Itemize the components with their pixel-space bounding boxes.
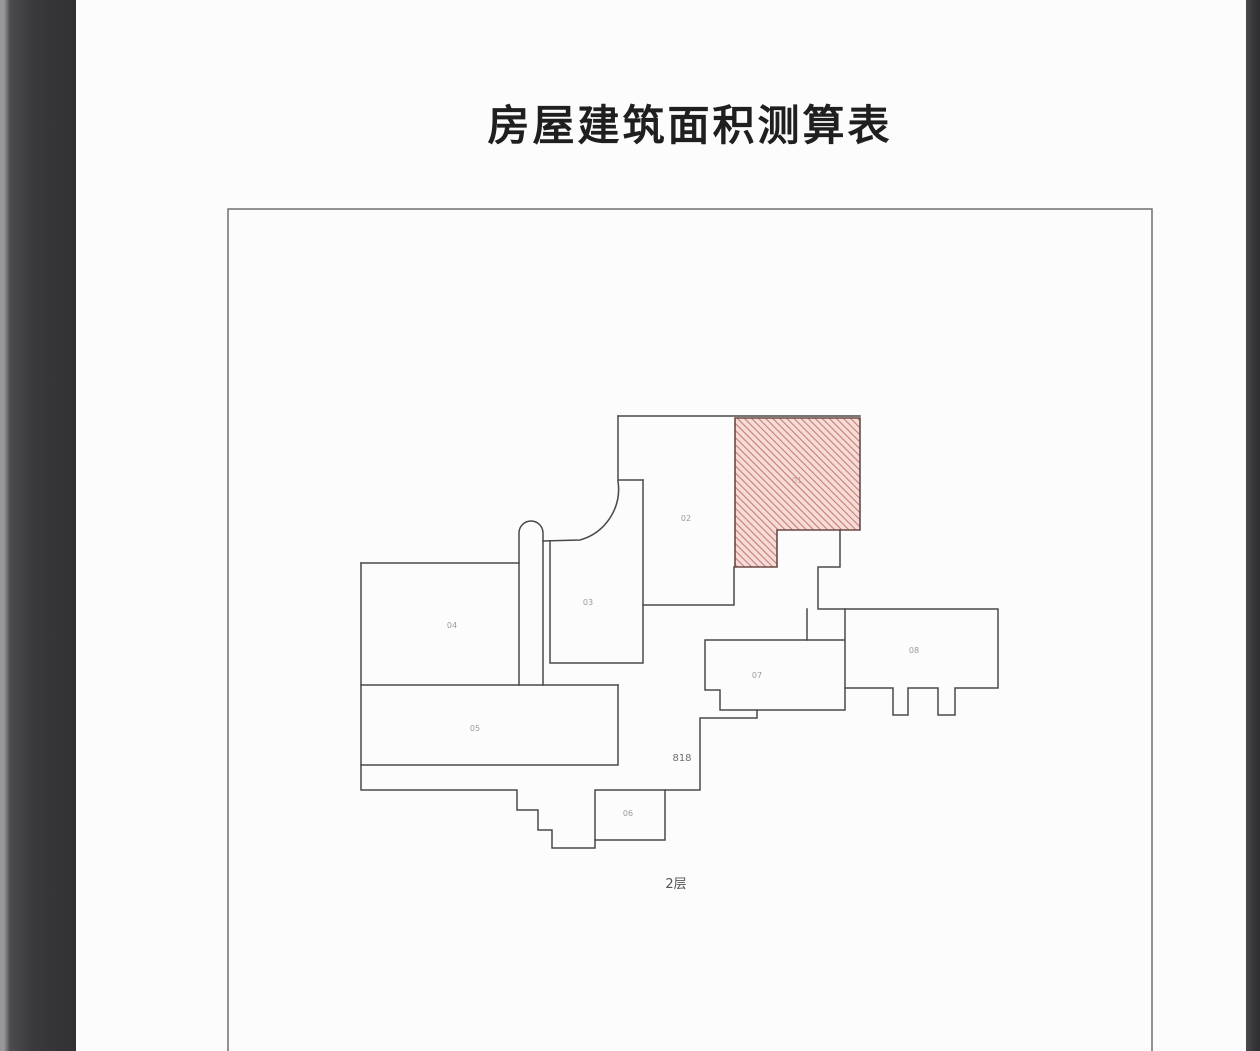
wall-unit02-bottom [643, 567, 734, 605]
wall-unit02-left [618, 416, 643, 480]
unit-01-highlighted-area [735, 418, 860, 567]
wall-shaft-dome [519, 521, 543, 685]
unit-label-06: 06 [623, 809, 633, 818]
wall-unit03 [550, 480, 643, 663]
unit-label-03: 03 [583, 598, 593, 607]
unit-label-07: 07 [752, 671, 762, 680]
viewer-right-edge [1246, 0, 1260, 1051]
wall-unit07 [705, 609, 845, 710]
drawing-frame [228, 209, 1152, 1051]
viewer-left-edge [0, 0, 76, 1051]
unit-label-05: 05 [470, 724, 480, 733]
wall-lower-step [665, 710, 757, 790]
wall-unit05 [361, 685, 618, 765]
unit-label-04: 04 [447, 621, 457, 630]
building-outline [361, 416, 998, 848]
wall-left-outer-stairs [361, 563, 595, 848]
document-page: 房屋建筑面积测算表 [0, 0, 1260, 1051]
unit-label-08: 08 [909, 646, 919, 655]
floor-label: 2层 [665, 877, 686, 892]
unit-label-02: 02 [681, 514, 691, 523]
unit-label-01: 01 [792, 476, 802, 485]
block-number-label: 818 [672, 753, 691, 764]
floor-plan-drawing: 01 02 03 04 05 06 07 08 818 2层 [0, 0, 1260, 1051]
wall-curved-notch [543, 481, 619, 541]
